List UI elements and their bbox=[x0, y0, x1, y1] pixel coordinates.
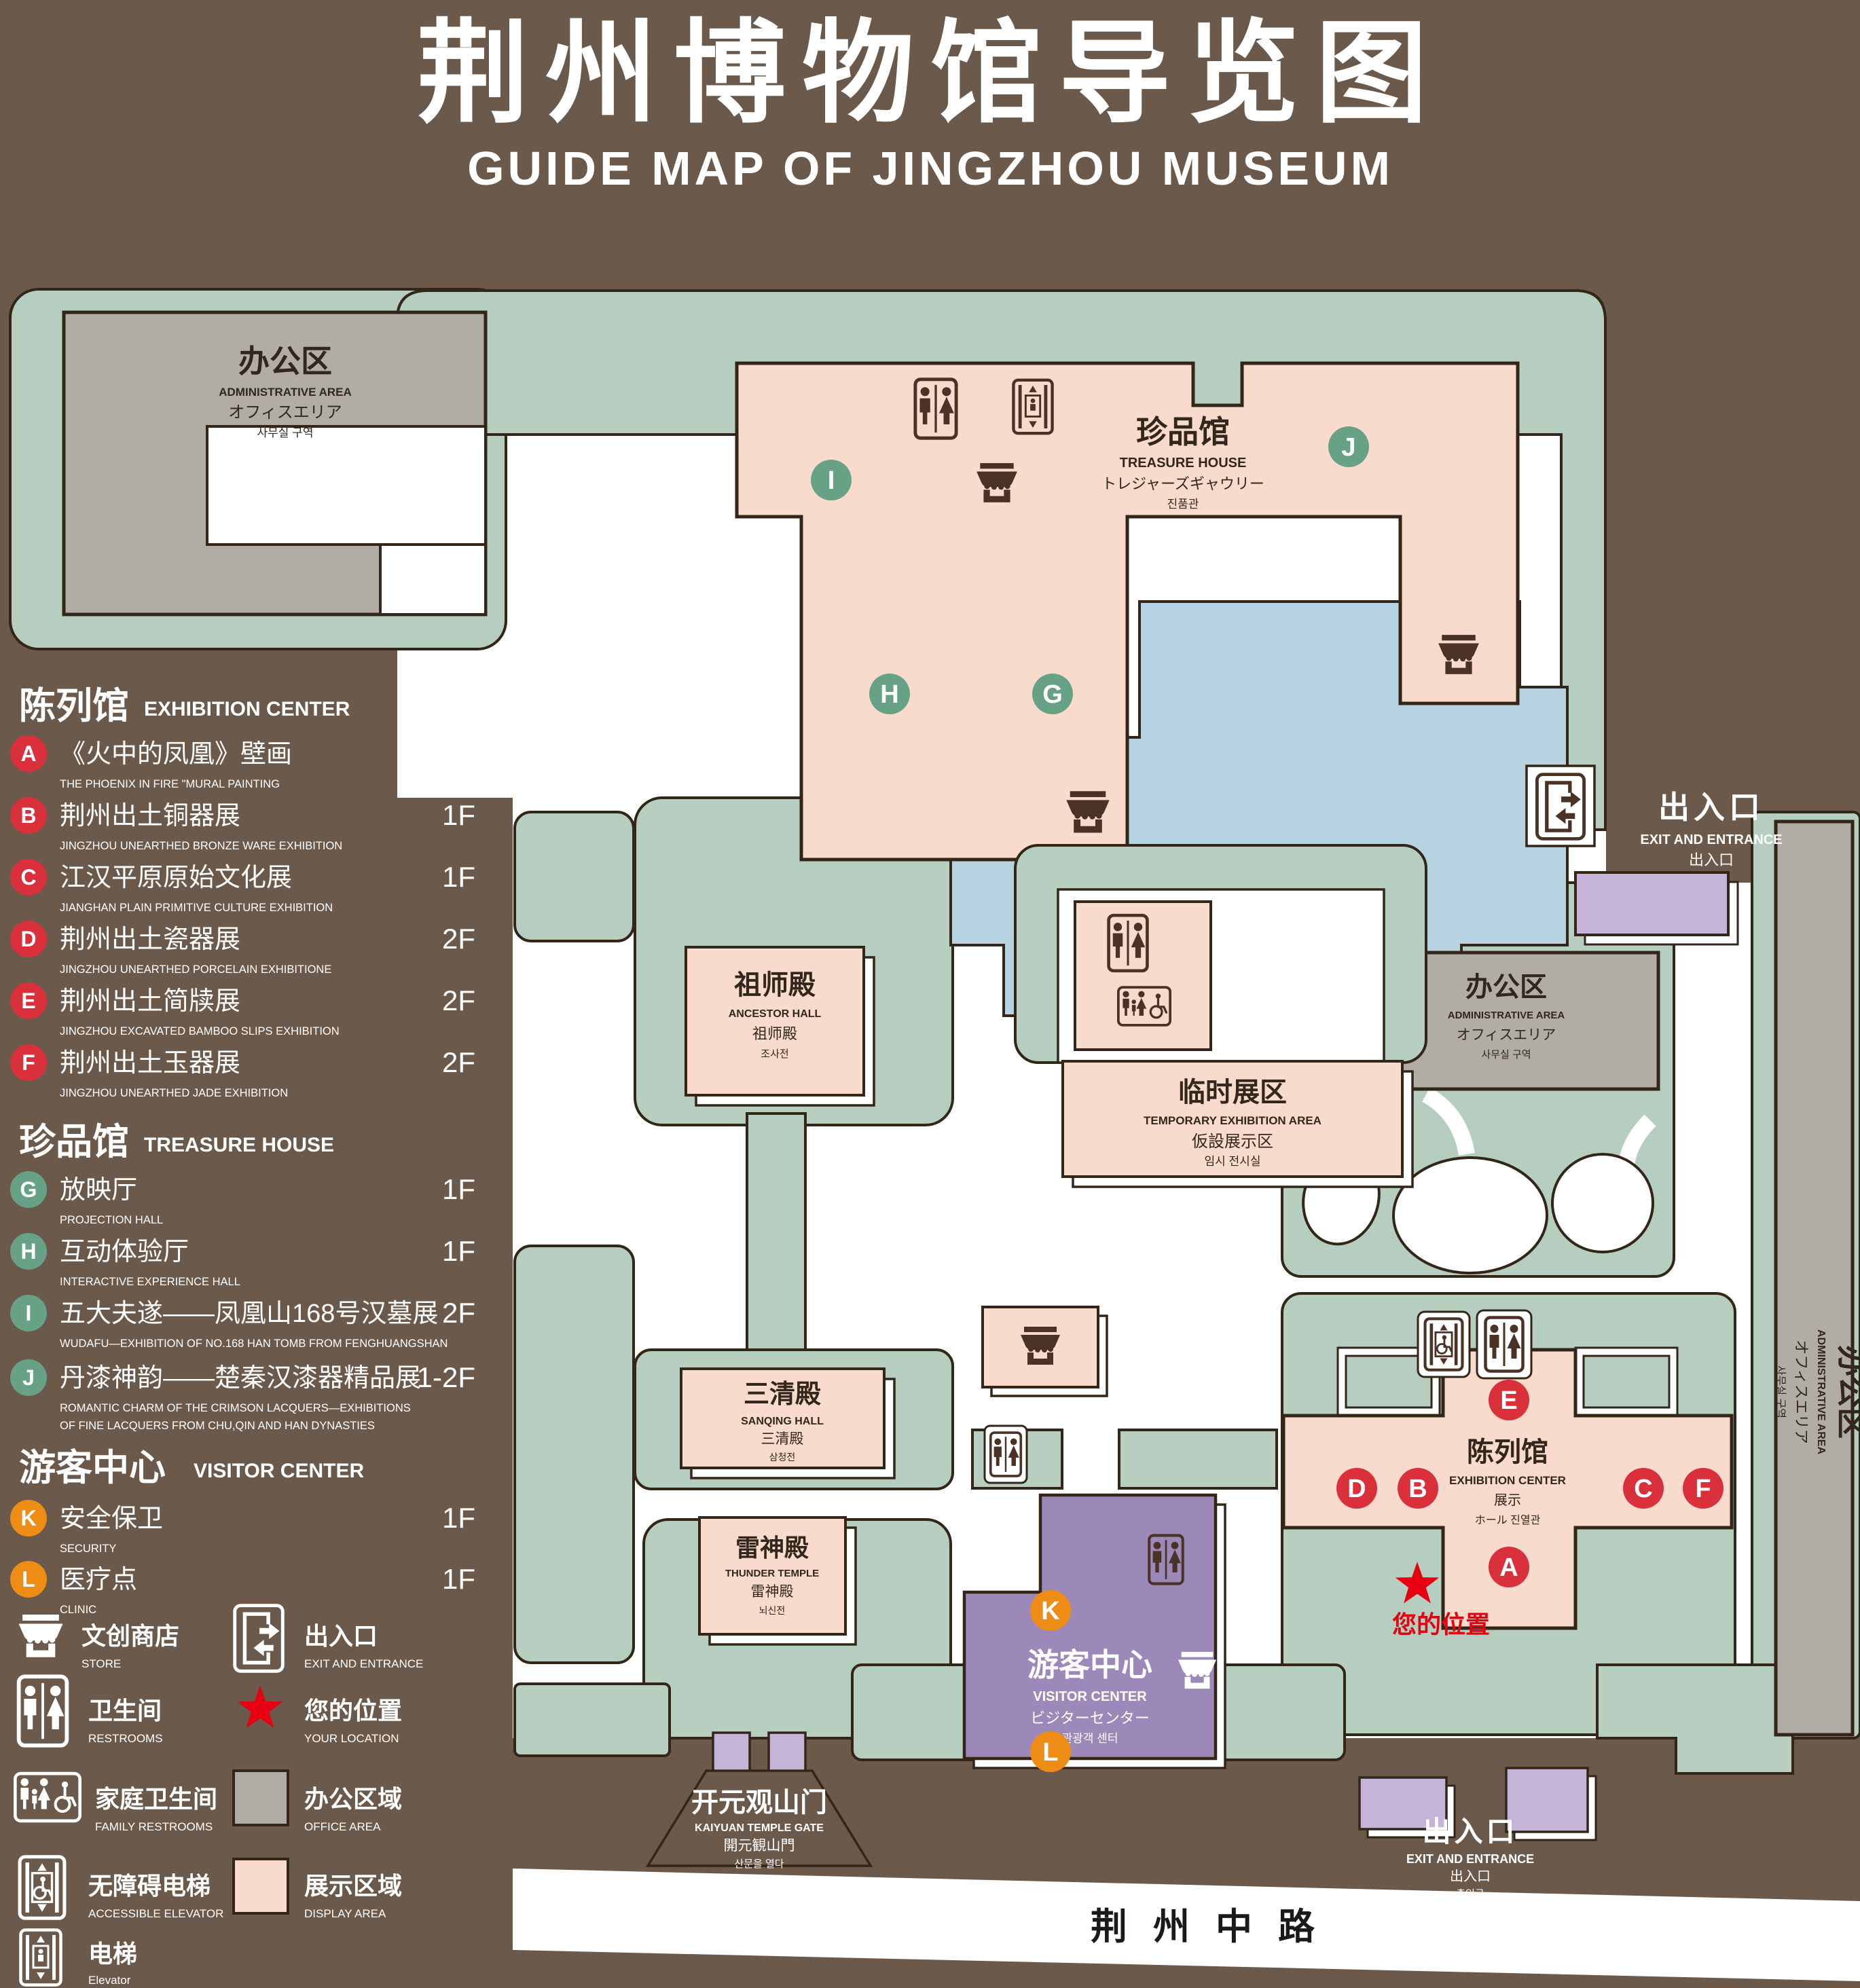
admin-right-ja: オフィスエリア bbox=[1457, 1027, 1556, 1043]
temporary-ko: 임시 전시실 bbox=[1205, 1155, 1261, 1168]
ancestor-zh: 祖师殿 bbox=[734, 970, 816, 1000]
treasure-ja: トレジャーズギャウリー bbox=[1101, 475, 1264, 492]
legend-item-B: B 荆州出土铜器展 JINGZHOU UNEARTHED BRONZE WARE… bbox=[10, 797, 475, 852]
svg-text:L: L bbox=[22, 1567, 35, 1591]
exit-top-building bbox=[1575, 872, 1728, 935]
gate-ja: 開元観山門 bbox=[724, 1838, 795, 1854]
marker-A: A bbox=[1499, 1553, 1518, 1582]
exit-top-zh-small: 出入口 bbox=[1689, 851, 1734, 868]
family-restroom-icon bbox=[15, 1773, 79, 1821]
thunder-en: THUNDER TEMPLE bbox=[725, 1568, 819, 1579]
admin-topleft-cut bbox=[380, 545, 486, 614]
svg-text:2F: 2F bbox=[442, 984, 475, 1016]
svg-text:INTERACTIVE EXPERIENCE HALL: INTERACTIVE EXPERIENCE HALL bbox=[60, 1276, 240, 1288]
exit-bottom-zh-small: 出入口 bbox=[1450, 1869, 1491, 1884]
legend-items-treasure: G 放映厅 PROJECTION HALL 1F H 互动体验厅 INTERAC… bbox=[10, 1171, 475, 1432]
legend-icon-rows: 文创商店 STORE 出入口 EXIT AND ENTRANCE 卫生间 RES… bbox=[15, 1606, 423, 1987]
exit-bottom: 出入口 EXIT AND ENTRANCE 出入口 출입구 bbox=[1350, 1738, 1615, 1900]
legend-item-F: F 荆州出土玉器展 JINGZHOU UNEARTHED JADE EXHIBI… bbox=[10, 1044, 475, 1099]
elevator-icon bbox=[21, 1930, 61, 1985]
exit-bottom-ko: 출입구 bbox=[1456, 1888, 1484, 1900]
admin-right-en: ADMINISTRATIVE AREA bbox=[1448, 1010, 1565, 1021]
visitor-en: VISITOR CENTER bbox=[1033, 1689, 1147, 1704]
svg-text:家庭卫生间: 家庭卫生间 bbox=[95, 1785, 217, 1813]
admin-label-ja: オフィスエリア bbox=[228, 403, 342, 422]
store-icon bbox=[19, 1615, 63, 1657]
gate-ko: 산문을 열다 bbox=[734, 1858, 784, 1870]
svg-text:出入口: 出入口 bbox=[304, 1622, 378, 1650]
your-location-label: 您的位置 bbox=[1392, 1610, 1490, 1638]
pond-right bbox=[1552, 1154, 1653, 1252]
thunder-zh: 雷神殿 bbox=[735, 1534, 809, 1562]
ancestor-en: ANCESTOR HALL bbox=[729, 1008, 822, 1020]
svg-text:荆州出土简牍展: 荆州出土简牍展 bbox=[60, 987, 240, 1016]
svg-text:ACCESSIBLE ELEVATOR: ACCESSIBLE ELEVATOR bbox=[88, 1907, 223, 1920]
legend-item-D: D 荆州出土瓷器展 JINGZHOU UNEARTHED PORCELAIN E… bbox=[10, 921, 475, 976]
map-canvas: 荆州博物馆导览图 GUIDE MAP OF JINGZHOU MUSEUM bbox=[0, 0, 1860, 1988]
svg-text:JINGZHOU EXCAVATED BAMBOO SLIP: JINGZHOU EXCAVATED BAMBOO SLIPS EXHIBITI… bbox=[60, 1025, 340, 1037]
gate-zh: 开元观山门 bbox=[691, 1788, 827, 1818]
svg-text:文创商店: 文创商店 bbox=[81, 1622, 179, 1650]
accessible-elevator-icon bbox=[20, 1857, 65, 1918]
svg-text:荆州出土玉器展: 荆州出土玉器展 bbox=[60, 1049, 240, 1078]
svg-text:JINGZHOU UNEARTHED BRONZE WARE: JINGZHOU UNEARTHED BRONZE WARE EXHIBITIO… bbox=[60, 840, 342, 852]
exit-entrance-icon bbox=[235, 1606, 283, 1672]
marker-K: K bbox=[1041, 1597, 1060, 1625]
admin-label-zh: 办公区 bbox=[238, 344, 332, 379]
svg-text:丹漆神韵——楚秦汉漆器精品展: 丹漆神韵——楚秦汉漆器精品展 bbox=[60, 1364, 421, 1393]
admin-farright-building bbox=[1776, 822, 1853, 1735]
marker-G: G bbox=[1042, 680, 1063, 709]
legend-item-J: J 丹漆神韵——楚秦汉漆器精品展 ROMANTIC CHARM OF THE C… bbox=[10, 1359, 475, 1432]
legend-section-exhibition-en: EXHIBITION CENTER bbox=[144, 698, 350, 720]
svg-text:J: J bbox=[22, 1365, 35, 1390]
sanqing-ko: 삼청전 bbox=[769, 1452, 796, 1462]
legend-section-visitor-zh: 游客中心 bbox=[19, 1448, 166, 1488]
exit-bottom-building-right bbox=[1506, 1768, 1588, 1832]
svg-text:JIANGHAN PLAIN PRIMITIVE CULTU: JIANGHAN PLAIN PRIMITIVE CULTURE EXHIBIT… bbox=[60, 902, 333, 914]
admin-right-ko: 사무실 구역 bbox=[1481, 1049, 1531, 1061]
temporary-en: TEMPORARY EXHIBITION AREA bbox=[1144, 1114, 1321, 1127]
svg-text:1F: 1F bbox=[442, 1563, 475, 1595]
svg-text:E: E bbox=[21, 989, 35, 1013]
marker-D: D bbox=[1347, 1475, 1366, 1503]
admin-farright-en: ADMINISTRATIVE AREA bbox=[1815, 1329, 1827, 1454]
svg-text:1F: 1F bbox=[442, 861, 475, 893]
legend-section-visitor-en: VISITOR CENTER bbox=[194, 1460, 364, 1482]
admin-farright-ko: 사무실 구역 bbox=[1774, 1365, 1787, 1418]
svg-text:放映厅: 放映厅 bbox=[60, 1176, 137, 1204]
svg-text:RESTROOMS: RESTROOMS bbox=[88, 1732, 163, 1745]
marker-F: F bbox=[1695, 1475, 1711, 1503]
sanqing-ja: 三清殿 bbox=[761, 1431, 804, 1447]
exit-bottom-zh: 出入口 bbox=[1422, 1816, 1518, 1847]
ancestor-hall-building bbox=[686, 947, 864, 1095]
svg-text:D: D bbox=[20, 927, 36, 951]
display-area-swatch bbox=[234, 1859, 288, 1913]
marker-C: C bbox=[1634, 1475, 1652, 1503]
svg-text:FAMILY RESTROOMS: FAMILY RESTROOMS bbox=[95, 1820, 213, 1833]
svg-text:1F: 1F bbox=[442, 1173, 475, 1205]
gate-pillar-right bbox=[769, 1733, 805, 1772]
svg-text:C: C bbox=[20, 865, 36, 889]
marker-I: I bbox=[828, 466, 835, 495]
office-area-swatch bbox=[234, 1771, 288, 1825]
exhibition-ja: 展示 bbox=[1494, 1493, 1521, 1508]
treasure-zh: 珍品馆 bbox=[1136, 414, 1230, 449]
svg-text:展示区域: 展示区域 bbox=[304, 1872, 402, 1900]
svg-text:I: I bbox=[26, 1301, 32, 1325]
svg-text:B: B bbox=[20, 803, 36, 828]
legend-item-I: I 五大夫遂——凤凰山168号汉墓展 WUDAFU—EXHIBITION OF … bbox=[10, 1295, 475, 1350]
svg-text:1F: 1F bbox=[442, 737, 475, 769]
svg-text:您的位置: 您的位置 bbox=[304, 1697, 402, 1725]
svg-text:F: F bbox=[22, 1050, 35, 1075]
temporary-zh: 临时展区 bbox=[1178, 1078, 1287, 1107]
svg-text:1F: 1F bbox=[442, 1502, 475, 1534]
svg-text:江汉平原原始文化展: 江汉平原原始文化展 bbox=[60, 864, 292, 892]
accessible-elevator-icon bbox=[1425, 1319, 1463, 1369]
legend-item-H: H 互动体验厅 INTERACTIVE EXPERIENCE HALL 1F bbox=[10, 1233, 475, 1288]
svg-text:WUDAFU—EXHIBITION OF NO.168 HA: WUDAFU—EXHIBITION OF NO.168 HAN TOMB FRO… bbox=[60, 1338, 448, 1350]
green-left-small bbox=[515, 812, 634, 941]
exit-top-zh: 出入口 bbox=[1658, 790, 1764, 825]
pond-center bbox=[1393, 1158, 1547, 1273]
treasure-en: TREASURE HOUSE bbox=[1120, 456, 1247, 471]
temporary-ja: 仮設展示区 bbox=[1192, 1133, 1273, 1151]
svg-text:JINGZHOU UNEARTHED PORCELAIN E: JINGZHOU UNEARTHED PORCELAIN EXHIBITIONE bbox=[60, 963, 331, 976]
green-left-tall bbox=[515, 1246, 634, 1663]
admin-label-ko: 사무실 구역 bbox=[257, 426, 314, 439]
marker-H: H bbox=[880, 680, 898, 709]
green-visitor-top-right bbox=[1119, 1430, 1277, 1488]
svg-text:STORE: STORE bbox=[81, 1657, 121, 1670]
legend: 陈列馆 EXHIBITION CENTER A 《火中的凤凰》壁画 THE PH… bbox=[10, 686, 475, 1987]
green-bottom-right bbox=[1597, 1665, 1793, 1773]
svg-text:安全保卫: 安全保卫 bbox=[60, 1505, 163, 1533]
svg-text:A: A bbox=[20, 741, 36, 766]
exit-bottom-label: 出入口 EXIT AND ENTRANCE 出入口 출입구 bbox=[1406, 1816, 1534, 1900]
svg-text:无障碍电梯: 无障碍电梯 bbox=[88, 1872, 211, 1900]
svg-text:1F: 1F bbox=[442, 799, 475, 831]
sanqing-zh: 三清殿 bbox=[744, 1380, 821, 1409]
restrooms-icon bbox=[19, 1676, 67, 1746]
visitor-zh: 游客中心 bbox=[1027, 1647, 1152, 1682]
svg-text:YOUR LOCATION: YOUR LOCATION bbox=[304, 1732, 399, 1745]
exhibition-en: EXHIBITION CENTER bbox=[1449, 1474, 1566, 1487]
guide-map-poster: 荆州博物馆导览图 GUIDE MAP OF JINGZHOU MUSEUM bbox=[0, 0, 1860, 1988]
ancestor-ja: 祖师殿 bbox=[752, 1025, 797, 1042]
legend-items-visitor: K 安全保卫 SECURITY 1F L 医疗点 CLINIC 1F bbox=[10, 1500, 475, 1616]
svg-text:1-2F: 1-2F bbox=[417, 1361, 475, 1393]
legend-item-K: K 安全保卫 SECURITY 1F bbox=[10, 1500, 475, 1555]
thunder-ja: 雷神殿 bbox=[751, 1584, 794, 1600]
visitor-ja: ビジターセンター bbox=[1030, 1710, 1150, 1727]
temporary-restroom-block bbox=[1075, 902, 1211, 1050]
svg-text:医疗点: 医疗点 bbox=[60, 1566, 137, 1594]
legend-section-exhibition-zh: 陈列馆 bbox=[19, 686, 129, 726]
kaiyuan-gate: 开元观山门 KAIYUAN TEMPLE GATE 開元観山門 산문을 열다 bbox=[648, 1733, 871, 1870]
green-gate-left bbox=[515, 1684, 670, 1756]
svg-text:CLINIC: CLINIC bbox=[60, 1604, 96, 1616]
exhibition-zh: 陈列馆 bbox=[1467, 1437, 1548, 1467]
svg-text:五大夫遂——凤凰山168号汉墓展: 五大夫遂——凤凰山168号汉墓展 bbox=[60, 1300, 438, 1328]
legend-item-G: G 放映厅 PROJECTION HALL 1F bbox=[10, 1171, 475, 1226]
svg-text:电梯: 电梯 bbox=[88, 1940, 137, 1968]
green-pillar bbox=[747, 1113, 805, 1358]
svg-text:ROMANTIC CHARM OF THE CRIMSON: ROMANTIC CHARM OF THE CRIMSON LACQUERS—E… bbox=[60, 1402, 411, 1414]
admin-right-zh: 办公区 bbox=[1465, 972, 1547, 1002]
svg-text:PROJECTION HALL: PROJECTION HALL bbox=[60, 1214, 163, 1226]
gate-pillar-left bbox=[713, 1733, 750, 1772]
svg-text:1F: 1F bbox=[442, 1235, 475, 1267]
admin-farright-ja: オフィスエリア bbox=[1793, 1340, 1810, 1444]
your-location-star bbox=[238, 1685, 282, 1728]
treasure-ko: 진품관 bbox=[1167, 498, 1199, 511]
svg-text:互动体验厅: 互动体验厅 bbox=[60, 1238, 189, 1266]
svg-text:办公区域: 办公区域 bbox=[304, 1785, 402, 1813]
svg-text:K: K bbox=[20, 1506, 36, 1530]
admin-topleft-courtyard bbox=[207, 426, 486, 545]
svg-text:荆州出土铜器展: 荆州出土铜器展 bbox=[60, 802, 240, 830]
svg-text:G: G bbox=[20, 1177, 37, 1202]
exit-bottom-en: EXIT AND ENTRANCE bbox=[1406, 1852, 1534, 1866]
legend-section-treasure-en: TREASURE HOUSE bbox=[144, 1134, 334, 1156]
svg-text:JINGZHOU UNEARTHED JADE EXHIBI: JINGZHOU UNEARTHED JADE EXHIBITION bbox=[60, 1087, 288, 1099]
svg-text:SECURITY: SECURITY bbox=[60, 1543, 116, 1555]
svg-text:2F: 2F bbox=[442, 1046, 475, 1078]
svg-text:OFFICE AREA: OFFICE AREA bbox=[304, 1820, 381, 1833]
legend-item-E: E 荆州出土简牍展 JINGZHOU EXCAVATED BAMBOO SLIP… bbox=[10, 982, 475, 1037]
svg-text:荆州出土瓷器展: 荆州出土瓷器展 bbox=[60, 925, 240, 954]
svg-text:EXIT AND ENTRANCE: EXIT AND ENTRANCE bbox=[304, 1657, 423, 1670]
marker-J: J bbox=[1341, 433, 1355, 462]
svg-text:OF FINE LACQUERS FROM CHU,QIN: OF FINE LACQUERS FROM CHU,QIN AND HAN DY… bbox=[60, 1420, 375, 1432]
gate-en: KAIYUAN TEMPLE GATE bbox=[695, 1822, 824, 1834]
admin-label-en: ADMINISTRATIVE AREA bbox=[219, 386, 352, 399]
legend-item-L: L 医疗点 CLINIC 1F bbox=[10, 1561, 475, 1616]
marker-B: B bbox=[1408, 1475, 1427, 1503]
svg-text:《火中的凤凰》壁画: 《火中的凤凰》壁画 bbox=[60, 740, 292, 769]
svg-text:Elevator: Elevator bbox=[88, 1974, 131, 1987]
svg-text:2F: 2F bbox=[442, 923, 475, 955]
svg-text:DISPLAY AREA: DISPLAY AREA bbox=[304, 1907, 386, 1920]
svg-text:H: H bbox=[20, 1239, 36, 1264]
poster-header: 荆州博物馆导览图 GUIDE MAP OF JINGZHOU MUSEUM bbox=[417, 11, 1444, 195]
marker-L: L bbox=[1042, 1738, 1058, 1767]
svg-text:THE PHOENIX IN FIRE "MURAL PAI: THE PHOENIX IN FIRE "MURAL PAINTING bbox=[60, 778, 280, 790]
svg-text:2F: 2F bbox=[442, 1297, 475, 1329]
legend-section-treasure-zh: 珍品馆 bbox=[19, 1122, 129, 1162]
elevator-icon bbox=[1013, 380, 1052, 433]
marker-E: E bbox=[1500, 1386, 1517, 1415]
visitor-ko: 관광객 센터 bbox=[1062, 1732, 1118, 1745]
page-title: 荆州博物馆导览图 bbox=[417, 11, 1444, 136]
road-label: 荆州中路 bbox=[1091, 1907, 1341, 1947]
legend-item-C: C 江汉平原原始文化展 JIANGHAN PLAIN PRIMITIVE CUL… bbox=[10, 859, 475, 914]
sanqing-en: SANQING HALL bbox=[741, 1416, 824, 1427]
exit-top-en: EXIT AND ENTRANCE bbox=[1640, 832, 1782, 847]
ancestor-ko: 조사전 bbox=[761, 1048, 788, 1060]
thunder-ko: 뇌신전 bbox=[759, 1605, 786, 1616]
exhibition-jako: ホール 진열관 bbox=[1475, 1514, 1541, 1526]
page-subtitle: GUIDE MAP OF JINGZHOU MUSEUM bbox=[467, 142, 1393, 195]
admin-farright-zh: 办公区 bbox=[1834, 1345, 1860, 1439]
svg-text:卫生间: 卫生间 bbox=[88, 1697, 162, 1725]
